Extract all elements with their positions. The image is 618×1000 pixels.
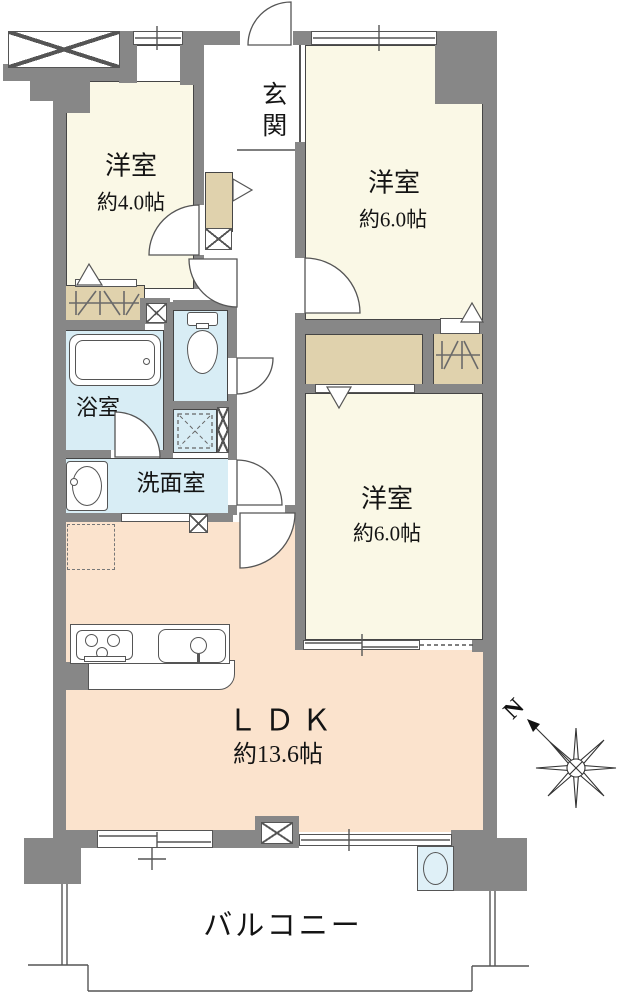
label-bedroom-middle: 洋室 — [361, 486, 413, 515]
stove-grill — [84, 656, 126, 662]
vent-balcony-wall — [261, 822, 293, 844]
room-ldk-right — [297, 650, 483, 832]
label-ldk-size: 約13.6帖 — [233, 742, 323, 768]
label-bedroom-top: 洋室 — [368, 170, 420, 199]
water-heater-drum — [423, 852, 448, 885]
toilet-button — [196, 323, 209, 329]
label-bath: 浴室 — [76, 396, 120, 420]
shoe-cabinet-door-marker — [233, 179, 252, 201]
washroom-kitchen-door — [121, 513, 191, 522]
pipe-shaft-kitchen — [189, 514, 208, 533]
kitchen-counter-lip — [88, 660, 235, 690]
closet-middle-room-door — [315, 384, 415, 393]
label-bedroom-middle-size: 約6.0帖 — [353, 522, 421, 545]
entrance-door — [248, 2, 291, 45]
middle-room-sliding-partition — [303, 640, 420, 650]
stove-burner-1 — [85, 634, 98, 647]
elevator-shaft — [8, 31, 120, 68]
washing-machine-space — [177, 413, 213, 449]
label-bedroom-small: 洋室 — [105, 153, 157, 182]
closet-top-room-door — [440, 318, 480, 334]
balcony-window-right — [299, 834, 452, 846]
shoe-cabinet — [205, 172, 233, 232]
window-bedroom-small — [133, 31, 183, 45]
pipe-space-hall — [217, 407, 229, 453]
label-entrance: 玄関 — [258, 81, 286, 143]
room-bedroom-middle — [305, 393, 483, 640]
label-bedroom-small-size: 約4.0帖 — [97, 191, 165, 214]
closet-middle-room — [305, 334, 423, 385]
toilet-door — [237, 358, 273, 394]
bathtub-drain — [143, 358, 150, 365]
compass-rose — [527, 719, 616, 808]
washbasin-bowl — [72, 466, 102, 506]
stove-burner-2 — [107, 634, 120, 647]
label-bedroom-top-size: 約6.0帖 — [359, 208, 427, 231]
compass-north-label: N — [499, 693, 530, 724]
label-ldk: ＬＤＫ — [228, 705, 339, 738]
kitchen-faucet — [190, 637, 207, 654]
window-bedroom-top — [311, 31, 437, 45]
kitchen-faucet-stem — [197, 654, 200, 664]
washbasin-tap — [70, 478, 78, 486]
refrigerator-space — [67, 524, 115, 570]
label-washroom: 洗面室 — [137, 470, 206, 495]
pipe-shaft-entrance — [205, 228, 232, 250]
label-balcony: バルコニー — [203, 911, 362, 943]
closet-small-room — [63, 285, 145, 321]
washroom-door — [237, 460, 282, 505]
balcony-sliding-door — [97, 830, 213, 848]
closet-small-room-door — [75, 279, 137, 287]
floor-plan: 玄関 洋室 約4.0帖 洋室 約6.0帖 洋室 約6.0帖 浴室 洗面室 ＬＤＫ… — [0, 0, 618, 1000]
pipe-shaft-closet — [146, 303, 167, 323]
